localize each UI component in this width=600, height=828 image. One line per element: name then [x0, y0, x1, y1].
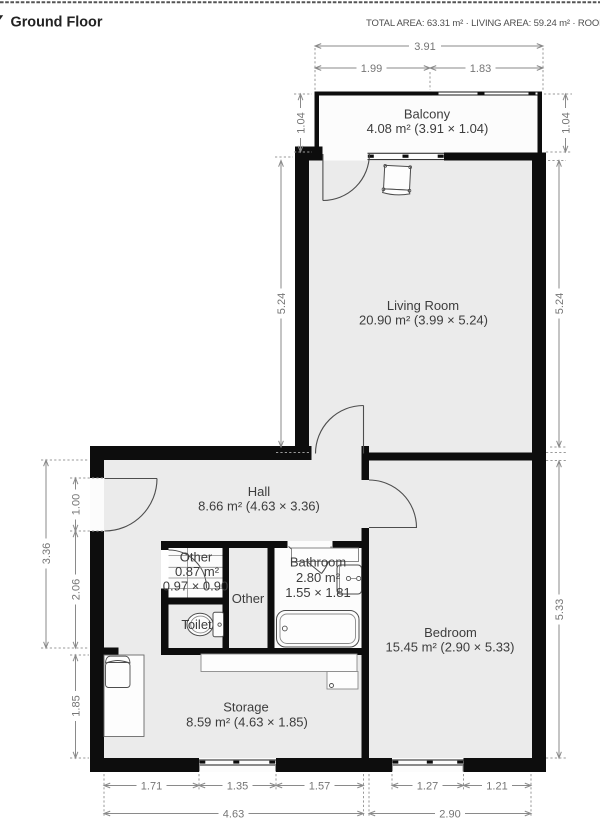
- svg-text:1.57: 1.57: [309, 780, 330, 792]
- svg-text:5.33: 5.33: [554, 599, 566, 620]
- svg-text:Storage: Storage: [223, 700, 269, 715]
- svg-text:Other: Other: [180, 550, 213, 565]
- svg-text:0.97 × 0.90: 0.97 × 0.90: [163, 579, 228, 594]
- svg-text:8.66 m² (4.63 × 3.36): 8.66 m² (4.63 × 3.36): [198, 499, 320, 514]
- svg-text:2.80 m²: 2.80 m²: [296, 570, 341, 585]
- svg-text:1.35: 1.35: [227, 780, 248, 792]
- svg-text:4.08 m² (3.91 × 1.04): 4.08 m² (3.91 × 1.04): [367, 121, 489, 136]
- svg-text:2.06: 2.06: [70, 579, 82, 600]
- svg-text:Bedroom: Bedroom: [424, 625, 477, 640]
- svg-text:4.63: 4.63: [223, 808, 244, 820]
- svg-text:20.90 m² (3.99 × 5.24): 20.90 m² (3.99 × 5.24): [359, 312, 488, 327]
- svg-text:0.87 m²: 0.87 m²: [175, 564, 220, 579]
- svg-text:Toilet: Toilet: [181, 617, 212, 632]
- svg-text:5.24: 5.24: [276, 293, 288, 314]
- svg-text:Hall: Hall: [248, 484, 271, 499]
- svg-text:3.36: 3.36: [41, 543, 53, 564]
- svg-text:1.27: 1.27: [417, 780, 438, 792]
- svg-text:1.83: 1.83: [470, 63, 491, 75]
- svg-text:5.24: 5.24: [554, 293, 566, 314]
- svg-text:1.85: 1.85: [70, 695, 82, 716]
- svg-text:1.71: 1.71: [141, 780, 162, 792]
- svg-text:3.91: 3.91: [414, 41, 435, 53]
- svg-text:Bathroom: Bathroom: [290, 555, 346, 570]
- svg-text:Balcony: Balcony: [404, 107, 451, 122]
- svg-text:1.21: 1.21: [486, 780, 507, 792]
- svg-text:1.99: 1.99: [361, 63, 382, 75]
- svg-text:Ground Floor: Ground Floor: [11, 14, 103, 30]
- svg-text:1.00: 1.00: [70, 494, 82, 515]
- svg-text:1.04: 1.04: [560, 112, 572, 133]
- svg-text:Other: Other: [232, 591, 265, 606]
- svg-text:15.45 m² (2.90 × 5.33): 15.45 m² (2.90 × 5.33): [386, 640, 515, 655]
- svg-text:TOTAL AREA: 63.31 m² · LIVING: TOTAL AREA: 63.31 m² · LIVING AREA: 59.2…: [366, 18, 600, 29]
- svg-text:8.59 m² (4.63 × 1.85): 8.59 m² (4.63 × 1.85): [186, 715, 308, 730]
- svg-text:2.90: 2.90: [439, 808, 460, 820]
- svg-text:Living Room: Living Room: [387, 298, 459, 313]
- svg-text:1.55 × 1.81: 1.55 × 1.81: [285, 585, 350, 600]
- svg-text:1.04: 1.04: [295, 112, 307, 133]
